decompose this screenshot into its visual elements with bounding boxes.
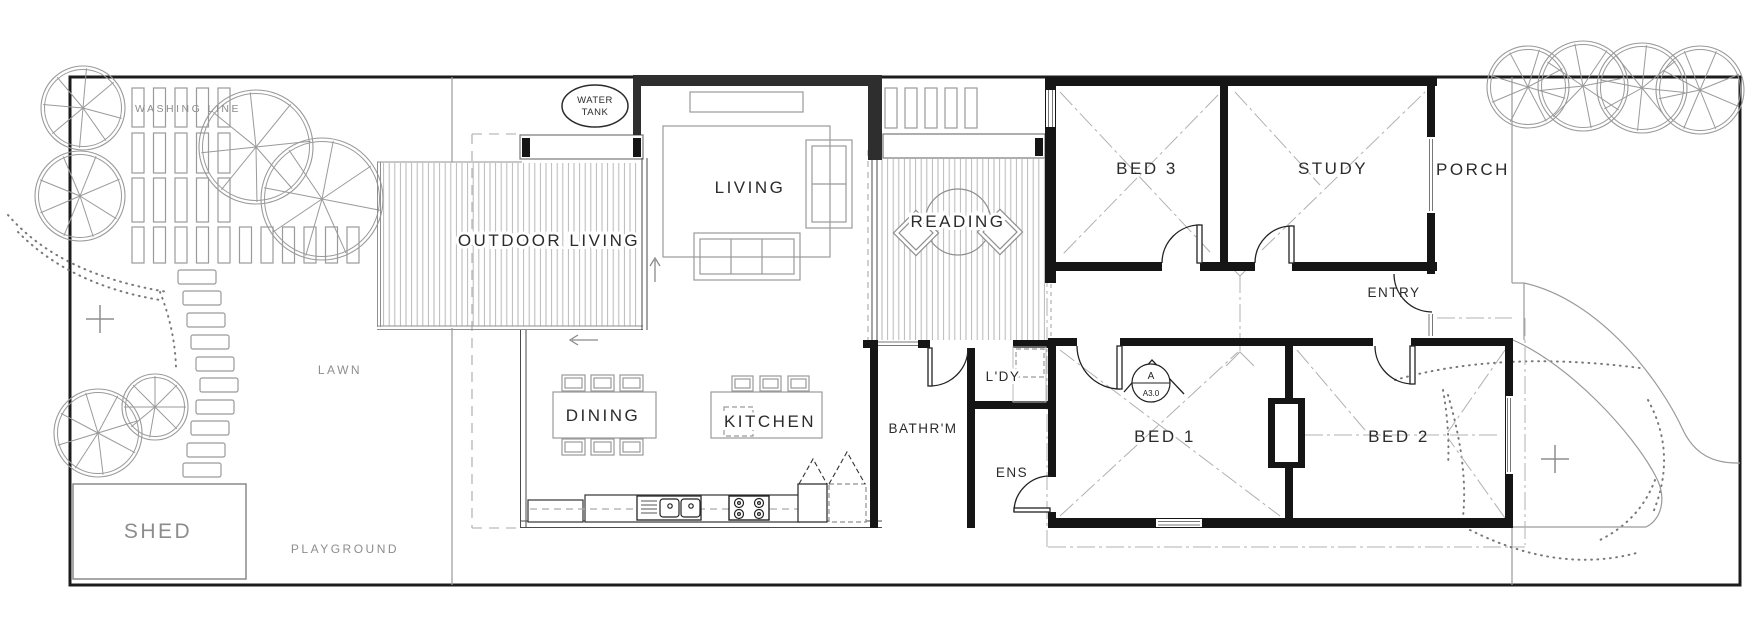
label-bed2: BED 2 xyxy=(1368,427,1430,446)
label-dining: DINING xyxy=(566,406,641,425)
label-playground: PLAYGROUND xyxy=(291,542,399,556)
label-bed3: BED 3 xyxy=(1116,159,1178,178)
kitchen-bench xyxy=(528,495,800,522)
label-kitchen: KITCHEN xyxy=(724,412,816,431)
label-washing-line: WASHING LINE xyxy=(135,103,241,115)
label-shed: SHED xyxy=(124,520,192,543)
pantry-fridge xyxy=(798,452,866,522)
label-lawn: LAWN xyxy=(318,363,362,377)
floor-plan-page: WASHING LINE LAWN SHED PLAYGROUND WATER … xyxy=(0,0,1762,618)
label-bathroom: BATHR'M xyxy=(888,421,957,436)
fireplace xyxy=(1275,404,1298,462)
new-wing-walls xyxy=(633,75,882,160)
label-water-tank-1: WATER xyxy=(577,95,613,106)
label-entry: ENTRY xyxy=(1367,285,1420,300)
section-marker-letter: A xyxy=(1148,371,1155,382)
floor-plan-canvas: WASHING LINE LAWN SHED PLAYGROUND WATER … xyxy=(0,0,1762,618)
label-bed1: BED 1 xyxy=(1134,427,1196,446)
driveway-curves xyxy=(1512,283,1740,527)
survey-plus-markers xyxy=(86,305,1569,473)
stepping-stones-path xyxy=(178,270,238,477)
left-arrow-icon xyxy=(570,335,598,345)
pergola-beams xyxy=(520,134,1045,159)
water-tank xyxy=(562,85,628,127)
label-study: STUDY xyxy=(1298,159,1368,178)
up-arrow-icon xyxy=(650,258,660,282)
label-laundry: L'DY xyxy=(986,369,1021,384)
section-marker-sheet: A3.0 xyxy=(1143,389,1160,398)
label-living: LIVING xyxy=(715,178,786,197)
label-porch: PORCH xyxy=(1436,160,1510,179)
label-ensuite: ENS xyxy=(996,465,1028,480)
reading-deck xyxy=(880,159,1045,340)
label-outdoor-living: OUTDOOR LIVING xyxy=(458,231,640,250)
label-reading: READING xyxy=(911,212,1006,231)
north-deck-planters xyxy=(885,88,977,128)
label-water-tank-2: TANK xyxy=(582,107,609,118)
